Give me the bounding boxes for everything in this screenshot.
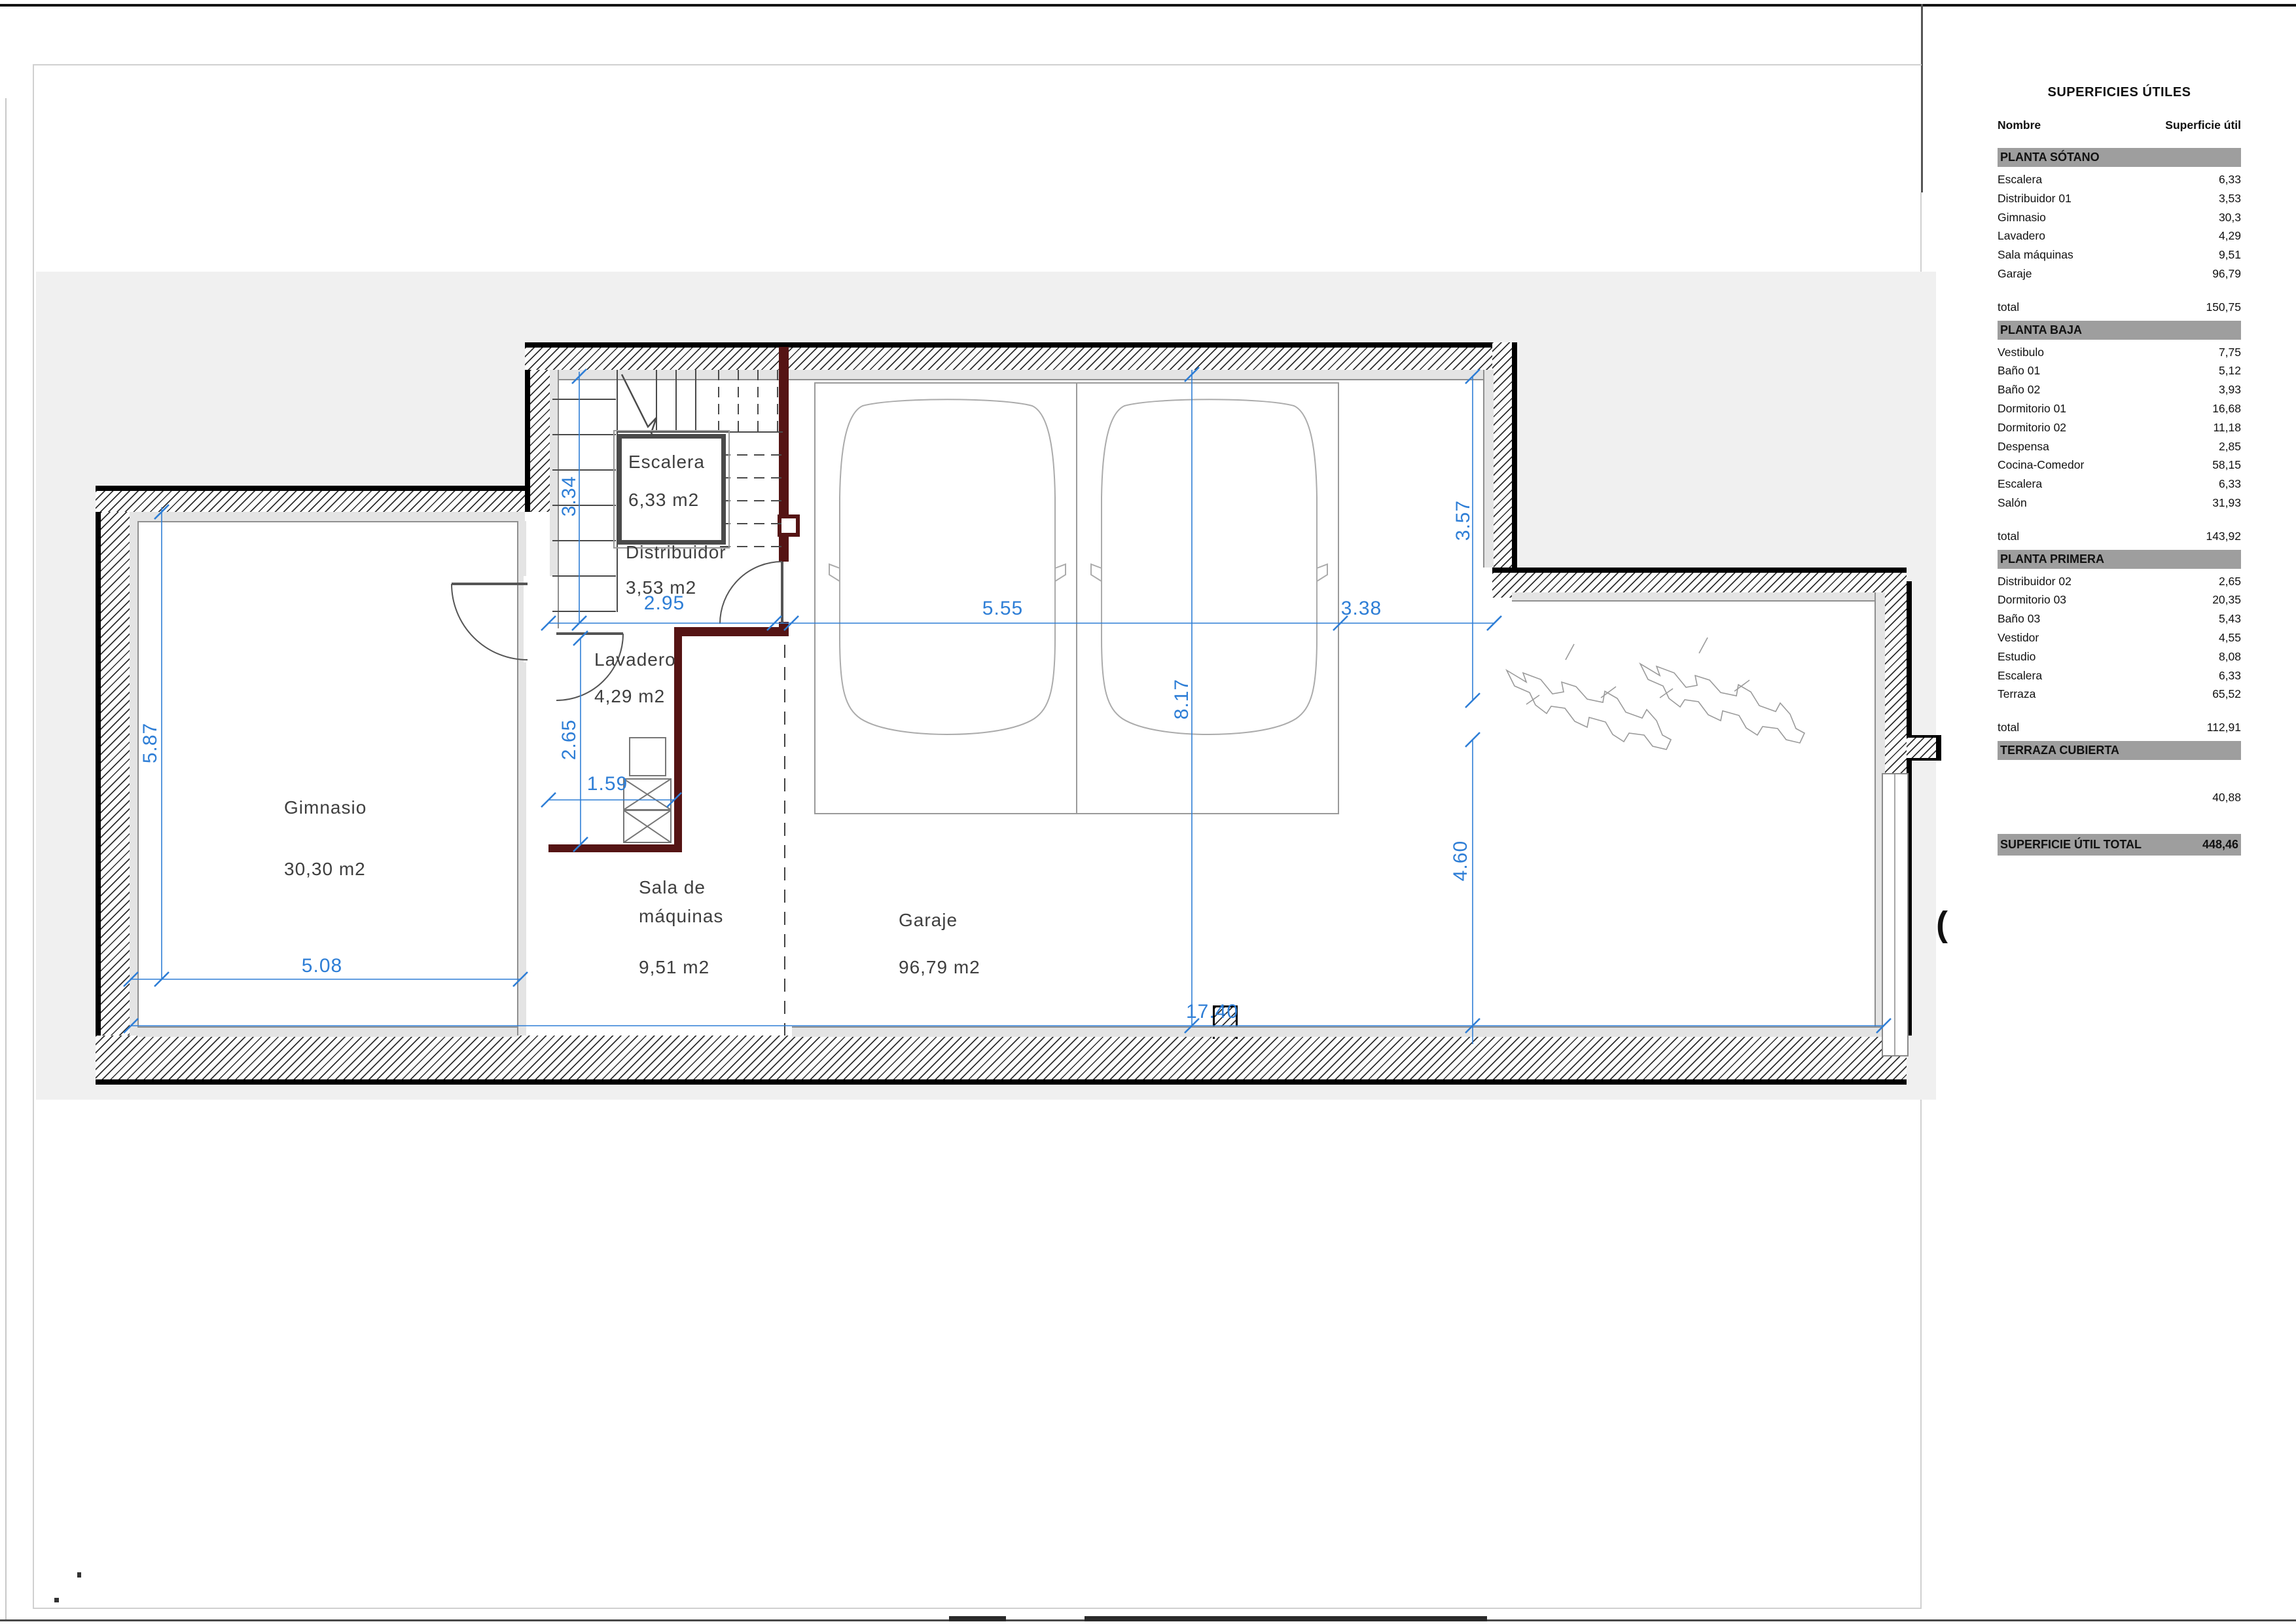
- row-value: 31,93: [2212, 494, 2241, 513]
- table-row: Garaje96,79: [1998, 264, 2241, 283]
- table-row: Escalera6,33: [1998, 666, 2241, 685]
- room-name: Garaje: [899, 906, 980, 935]
- section-total-row: total150,75: [1998, 298, 2241, 317]
- section-total-row: total143,92: [1998, 527, 2241, 546]
- section-header: TERRAZA CUBIERTA: [1998, 741, 2241, 760]
- surfaces-table: SUPERFICIES ÚTILES Nombre Superficie úti…: [1998, 85, 2241, 856]
- row-label: Distribuidor 01: [1998, 189, 2072, 208]
- row-value: 143,92: [2206, 527, 2241, 546]
- row-label: Sala máquinas: [1998, 245, 2073, 264]
- room-label-sala: Sala de máquinas9,51 m2: [639, 873, 723, 982]
- row-value: 5,12: [2219, 361, 2241, 380]
- row-value: 6,33: [2219, 170, 2241, 189]
- row-value: 6,33: [2219, 666, 2241, 685]
- table-body: PLANTA SÓTANOEscalera6,33Distribuidor 01…: [1998, 148, 2241, 856]
- dimension-text-4.60: 4.60: [1450, 840, 1472, 881]
- row-label: Escalera: [1998, 666, 2042, 685]
- car-icon: [1091, 399, 1327, 734]
- row-label: Despensa: [1998, 437, 2049, 456]
- dimension-text-17.40: 17.40: [1186, 1001, 1238, 1023]
- row-value: 7,75: [2219, 343, 2241, 362]
- table-row: Sala máquinas9,51: [1998, 245, 2241, 264]
- table-row: Despensa2,85: [1998, 437, 2241, 456]
- row-label: Baño 01: [1998, 361, 2040, 380]
- row-label: Gimnasio: [1998, 208, 2046, 227]
- plant-icon: [1640, 638, 1804, 743]
- room-label-gimnasio: Gimnasio30,30 m2: [284, 793, 367, 884]
- appliance-icons: [624, 738, 671, 842]
- row-label: Escalera: [1998, 475, 2042, 494]
- dimension-text-2.95: 2.95: [644, 592, 685, 615]
- table-row: Estudio8,08: [1998, 647, 2241, 666]
- row-value: 11,18: [2214, 418, 2242, 437]
- row-value: 112,91: [2207, 718, 2241, 737]
- row-label: Cocina-Comedor: [1998, 456, 2084, 475]
- grand-total-value: 448,46: [2202, 834, 2238, 856]
- room-area: 4,29 m2: [594, 682, 676, 711]
- room-label-escalera: Escalera6,33 m2: [628, 448, 705, 514]
- table-row: Escalera6,33: [1998, 170, 2241, 189]
- section-header: PLANTA PRIMERA: [1998, 550, 2241, 569]
- grand-total-label: SUPERFICIE ÚTIL TOTAL: [2000, 834, 2142, 856]
- row-label: Baño 03: [1998, 609, 2040, 628]
- row-value: 65,52: [2212, 685, 2241, 704]
- table-row: Baño 015,12: [1998, 361, 2241, 380]
- door-arc: [720, 562, 782, 624]
- row-label: Salón: [1998, 494, 2027, 513]
- row-label: total: [1998, 298, 2019, 317]
- column-header-name: Nombre: [1998, 118, 2041, 132]
- column-header-value: Superficie útil: [2165, 118, 2241, 132]
- dimension-text-5.55: 5.55: [982, 598, 1023, 620]
- row-value: 2,85: [2219, 437, 2241, 456]
- spacer: [1998, 806, 2241, 834]
- dimension-text-2.65: 2.65: [558, 719, 581, 760]
- row-value: 20,35: [2212, 590, 2241, 609]
- row-label: total: [1998, 527, 2019, 546]
- table-row: Escalera6,33: [1998, 475, 2241, 494]
- row-label: Dormitorio 01: [1998, 399, 2066, 418]
- dimension-text-3.57: 3.57: [1452, 500, 1475, 541]
- row-value: 3,93: [2219, 380, 2241, 399]
- window-icon: [1882, 774, 1908, 1056]
- room-label-lavadero: Lavadero4,29 m2: [594, 645, 676, 711]
- section-header: PLANTA BAJA: [1998, 321, 2241, 340]
- row-label: Escalera: [1998, 170, 2042, 189]
- row-label: Lavadero: [1998, 226, 2045, 245]
- dimension-text-5.87: 5.87: [139, 723, 162, 763]
- room-name: Escalera: [628, 448, 705, 477]
- dimension-text-3.34: 3.34: [558, 476, 581, 516]
- plant-icon: [1507, 644, 1671, 749]
- row-value: 6,33: [2219, 475, 2241, 494]
- section-header: PLANTA SÓTANO: [1998, 148, 2241, 167]
- row-label: Vestibulo: [1998, 343, 2044, 362]
- row-label: Dormitorio 02: [1998, 418, 2066, 437]
- table-row: Baño 023,93: [1998, 380, 2241, 399]
- dimension-ticks: [124, 367, 1891, 1033]
- row-value: 96,79: [2212, 264, 2241, 283]
- dimension-text-1.59: 1.59: [587, 773, 628, 795]
- row-label: Dormitorio 03: [1998, 590, 2066, 609]
- row-label: Distribuidor 02: [1998, 572, 2072, 591]
- row-label: Baño 02: [1998, 380, 2040, 399]
- parking-bays: [815, 383, 1338, 814]
- table-row: Lavadero4,29: [1998, 226, 2241, 245]
- room-area: 9,51 m2: [639, 953, 723, 982]
- row-value: 16,68: [2212, 399, 2241, 418]
- grand-total-row: SUPERFICIE ÚTIL TOTAL448,46: [1998, 834, 2241, 856]
- row-value: 150,75: [2206, 298, 2241, 317]
- row-label: Garaje: [1998, 264, 2032, 283]
- room-name: Gimnasio: [284, 793, 367, 822]
- room-name: Lavadero: [594, 645, 676, 674]
- row-label: Vestidor: [1998, 628, 2039, 647]
- door-arc: [452, 584, 528, 660]
- table-title: SUPERFICIES ÚTILES: [1998, 85, 2241, 100]
- room-name: Sala de máquinas: [639, 873, 723, 931]
- table-row: Dormitorio 0320,35: [1998, 590, 2241, 609]
- room-name: Distribuidor: [626, 538, 726, 567]
- row-value: 4,29: [2219, 226, 2241, 245]
- table-row: Salón31,93: [1998, 494, 2241, 513]
- table-row: Vestidor4,55: [1998, 628, 2241, 647]
- table-row: Vestibulo7,75: [1998, 343, 2241, 362]
- table-row: Gimnasio30,3: [1998, 208, 2241, 227]
- row-value: 58,15: [2212, 456, 2241, 475]
- row-value: 9,51: [2219, 245, 2241, 264]
- table-row: Distribuidor 013,53: [1998, 189, 2241, 208]
- drawing-sheet: ( Gimnasio30,30 m2Escalera6,33 m2Distrib…: [0, 0, 2296, 1624]
- row-value: 4,55: [2219, 628, 2241, 647]
- row-value: 8,08: [2219, 647, 2241, 666]
- section-total-row: total112,91: [1998, 718, 2241, 737]
- table-header-row: Nombre Superficie útil: [1998, 118, 2241, 132]
- row-label: Estudio: [1998, 647, 2036, 666]
- table-row: Dormitorio 0211,18: [1998, 418, 2241, 437]
- room-area: 96,79 m2: [899, 953, 980, 982]
- room-area: 6,33 m2: [628, 486, 705, 514]
- car-icon: [829, 399, 1066, 734]
- row-value: 3,53: [2219, 189, 2241, 208]
- dimension-text-3.38: 3.38: [1341, 598, 1382, 620]
- bracket-mark: (: [1936, 905, 1948, 944]
- row-value: 30,3: [2219, 208, 2241, 227]
- row-value: 2,65: [2219, 572, 2241, 591]
- table-row: Dormitorio 0116,68: [1998, 399, 2241, 418]
- table-row: Cocina-Comedor58,15: [1998, 456, 2241, 475]
- terraza-cubierta-value: 40,88: [1998, 788, 2241, 806]
- table-row: Terraza65,52: [1998, 685, 2241, 704]
- dimension-lines: [124, 367, 1891, 1044]
- table-row: Distribuidor 022,65: [1998, 572, 2241, 591]
- room-area: 30,30 m2: [284, 855, 367, 884]
- row-label: total: [1998, 718, 2019, 737]
- row-value: 5,43: [2219, 609, 2241, 628]
- spacer: [1998, 763, 2241, 788]
- dimension-text-5.08: 5.08: [302, 955, 342, 977]
- dimension-text-8.17: 8.17: [1171, 679, 1193, 719]
- row-label: Terraza: [1998, 685, 2036, 704]
- table-row: Baño 035,43: [1998, 609, 2241, 628]
- room-label-garaje: Garaje96,79 m2: [899, 906, 980, 982]
